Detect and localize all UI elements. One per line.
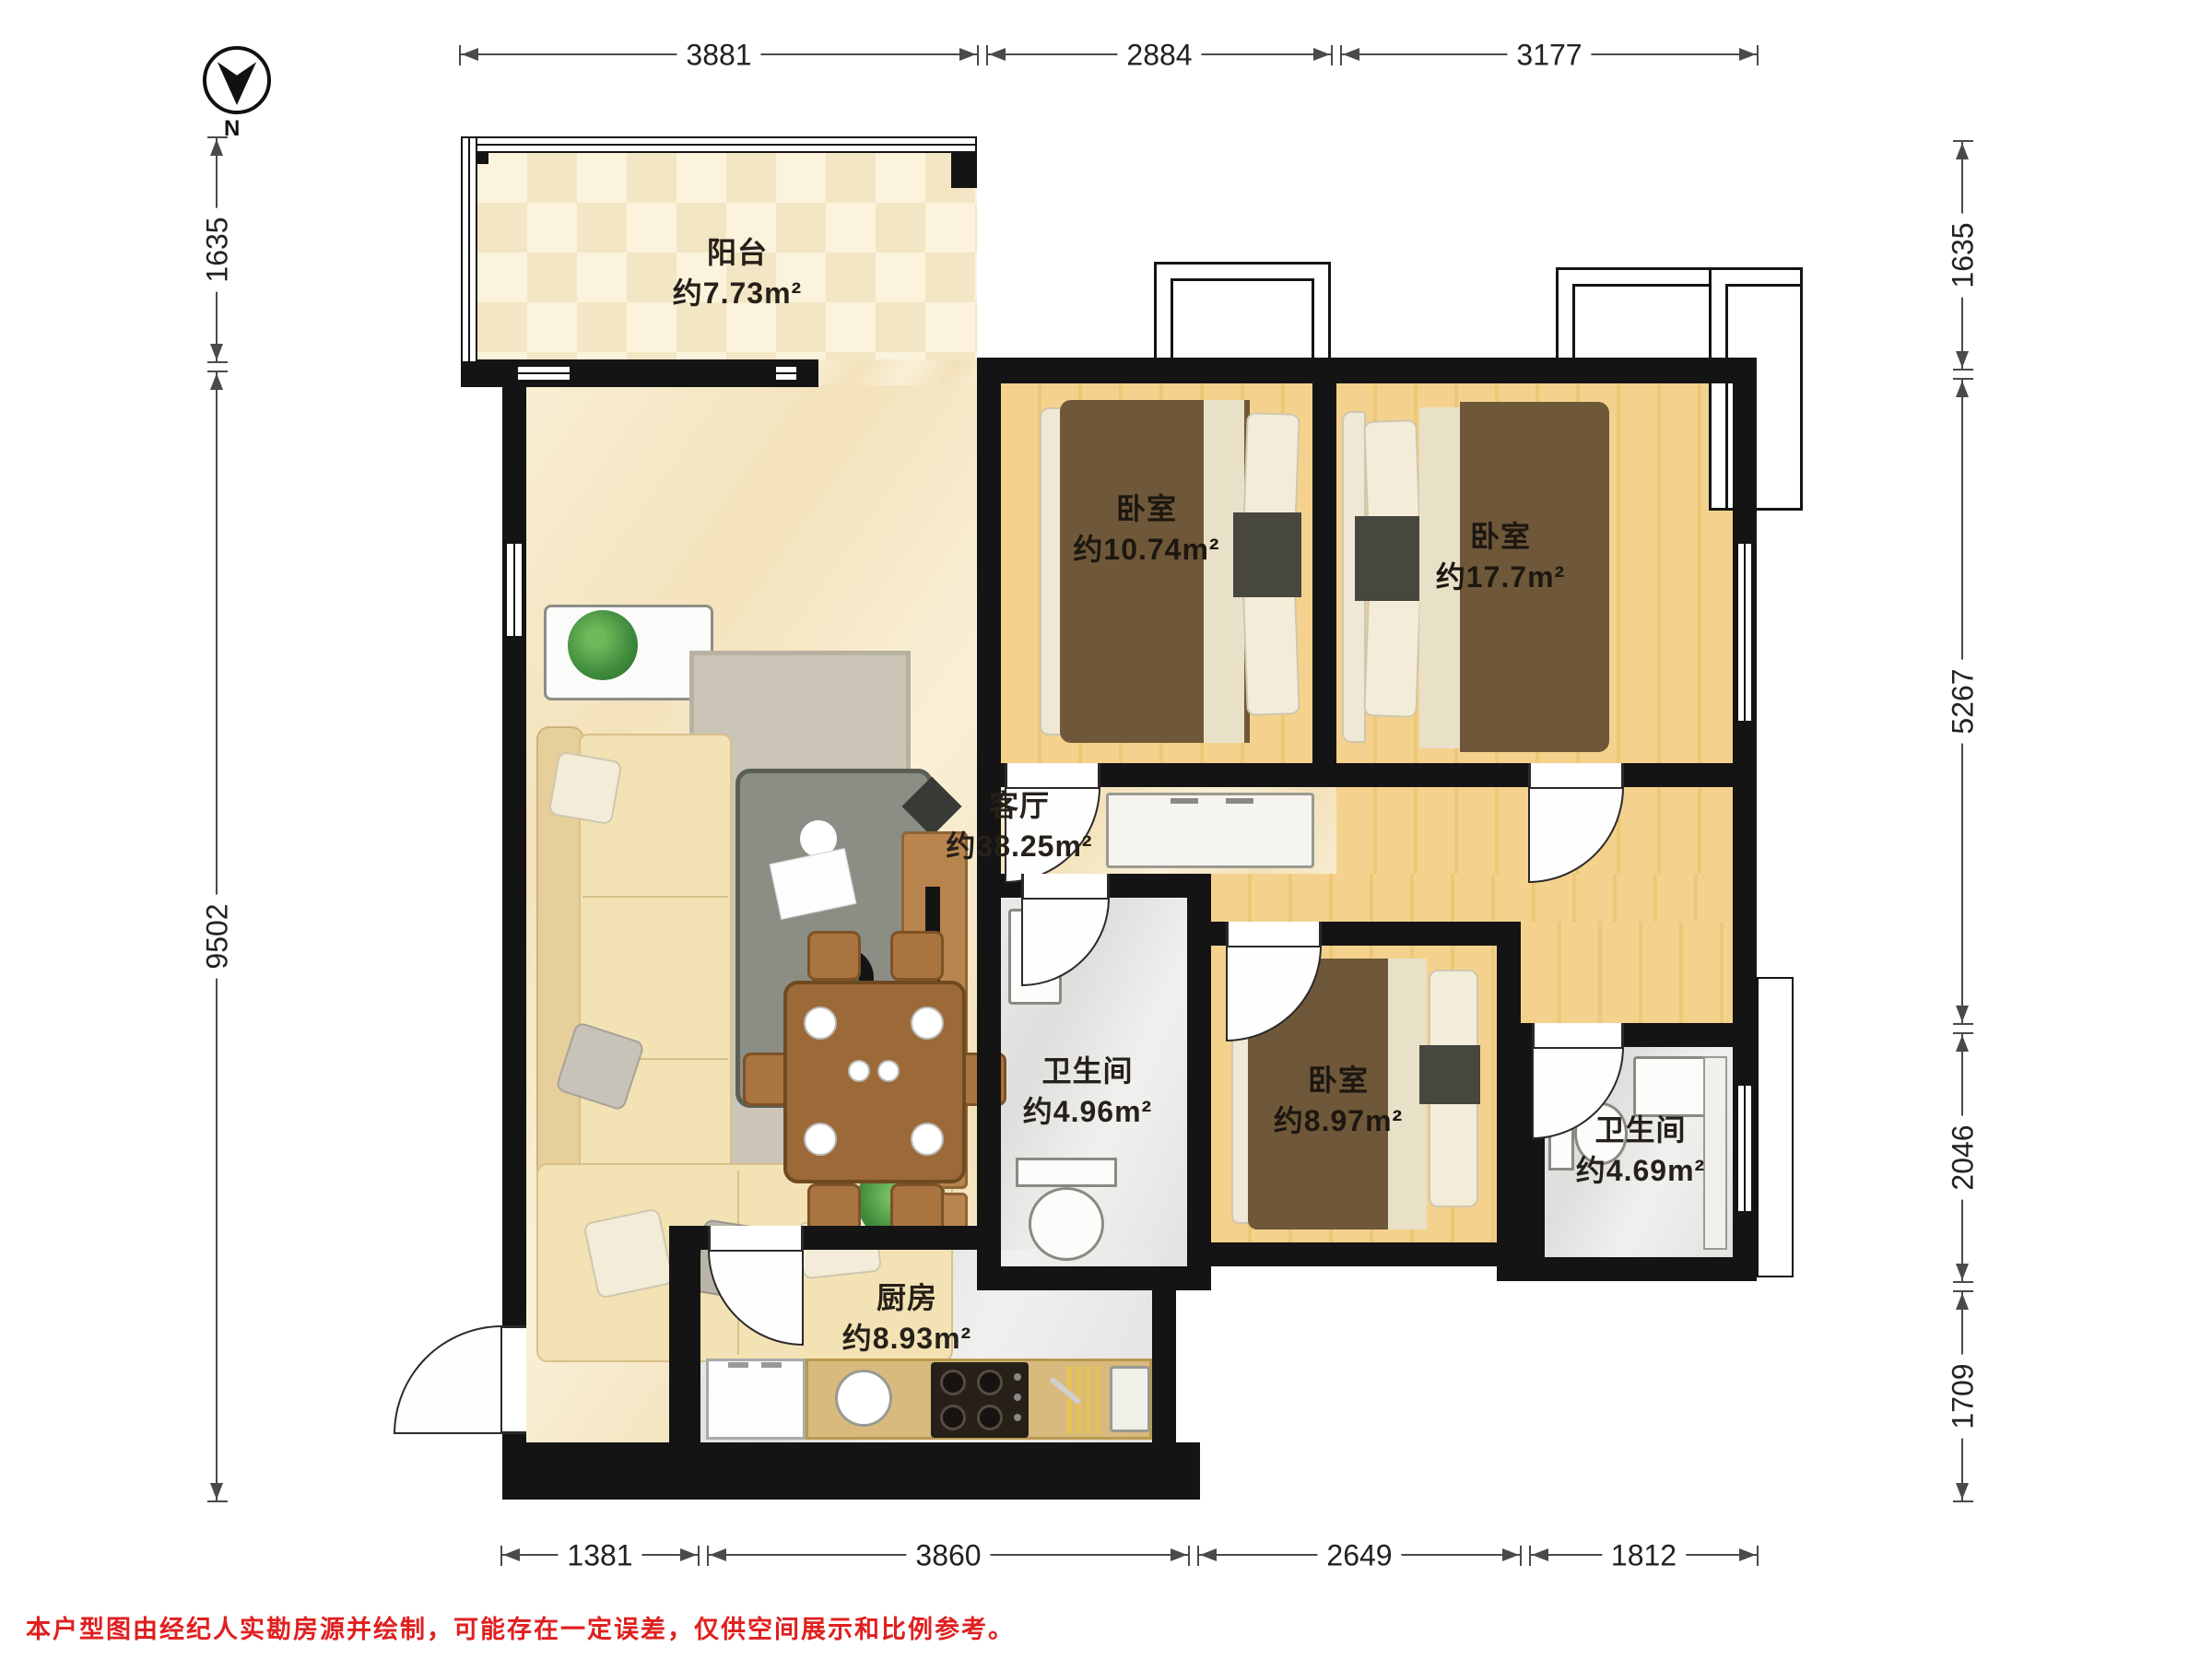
shower-ledge <box>1703 1056 1727 1250</box>
room-name: 卧室 <box>1436 516 1565 557</box>
window-icon <box>516 365 571 382</box>
dim-top-2: 2884 <box>988 53 1331 55</box>
cutting-board <box>1110 1366 1150 1432</box>
dim-bottom-4: 1812 <box>1531 1554 1757 1556</box>
dining-chair <box>807 931 861 981</box>
room-area: 约17.7m² <box>1436 557 1565 597</box>
wall <box>1001 763 1757 787</box>
room-area: 约8.93m² <box>842 1318 971 1359</box>
wall <box>1152 1266 1176 1444</box>
window-icon <box>774 365 798 382</box>
burner-icon <box>940 1370 966 1395</box>
dim-top-3: 3177 <box>1342 53 1757 55</box>
hall-floor-3 <box>1521 922 1733 1023</box>
balcony-glass-wall <box>461 136 477 363</box>
plate <box>911 1123 944 1156</box>
room-label-bathroom2: 卫生间 约4.69m² <box>1576 1110 1705 1191</box>
dim-bottom-2: 3860 <box>709 1554 1188 1556</box>
throw-pillow <box>547 750 622 825</box>
bed-runner <box>1419 1045 1480 1104</box>
wall <box>977 358 1757 383</box>
fridge-handle <box>728 1362 748 1368</box>
plate <box>804 1123 837 1156</box>
dim-top-1: 3881 <box>461 53 977 55</box>
room-name: 客厅 <box>946 785 1092 826</box>
dim-right-1: 1635 <box>1961 142 1963 369</box>
bedroom2-door-opening <box>1528 763 1624 787</box>
wall <box>1187 898 1211 1290</box>
room-name: 卫生间 <box>1023 1051 1152 1091</box>
burner-icon <box>977 1405 1003 1430</box>
compass-north-label: N <box>224 116 240 142</box>
potted-plant-icon <box>568 610 638 680</box>
dining-chair <box>890 931 944 981</box>
wall <box>502 1442 1200 1500</box>
dim-bottom-3: 2649 <box>1199 1554 1520 1556</box>
console-handle <box>1226 798 1253 804</box>
hall-floor-2 <box>1211 874 1733 922</box>
room-area: 约4.96m² <box>1023 1091 1152 1132</box>
bed-pillow <box>1429 1093 1478 1207</box>
wall <box>804 1226 977 1250</box>
bed-runner <box>1355 516 1425 601</box>
bedroom3-door-opening <box>1226 922 1322 946</box>
bedroom1-door-opening <box>1005 763 1100 787</box>
kitchen-sink-icon <box>835 1370 892 1427</box>
room-name: 阳台 <box>673 232 802 273</box>
compass <box>203 46 271 114</box>
bay-window-icon <box>1171 278 1314 361</box>
room-name: 卧室 <box>1274 1060 1403 1100</box>
dim-left-2: 9502 <box>216 372 218 1500</box>
kitchen-door-opening <box>708 1226 804 1250</box>
toilet-bowl-icon <box>1029 1187 1104 1261</box>
bowl <box>877 1060 900 1082</box>
room-label-balcony: 阳台 约7.73m² <box>673 232 802 313</box>
entry-door-opening <box>502 1325 526 1434</box>
fridge-handle <box>761 1362 782 1368</box>
wall <box>1497 922 1521 1266</box>
sofa-cushion-line <box>582 896 728 898</box>
wall <box>461 359 818 387</box>
wall <box>502 359 526 1325</box>
plate <box>804 1006 837 1040</box>
fridge <box>706 1359 806 1440</box>
room-name: 卧室 <box>1073 488 1219 529</box>
entry-door-arc <box>394 1325 502 1434</box>
room-label-bathroom1: 卫生间 约4.96m² <box>1023 1051 1152 1132</box>
room-label-bedroom3: 卧室 约8.97m² <box>1274 1060 1403 1141</box>
wall <box>1312 383 1336 787</box>
plate <box>911 1006 944 1040</box>
window-icon <box>505 542 524 638</box>
balcony-glass-wall <box>461 136 977 153</box>
chopsticks-icon <box>1086 1366 1090 1434</box>
room-name: 卫生间 <box>1576 1110 1705 1150</box>
dim-bottom-1: 1381 <box>502 1554 698 1556</box>
wall <box>1497 1257 1757 1281</box>
room-area: 约7.73m² <box>673 273 802 313</box>
console-cabinet <box>1106 793 1314 868</box>
room-label-living: 客厅 约38.25m² <box>946 785 1092 866</box>
dim-right-4: 1709 <box>1961 1292 1963 1500</box>
toilet-tank <box>1016 1158 1117 1187</box>
floor-plan: 阳台 约7.73m² 卧室 约10.74m² 卧室 约17.7m² 客厅 约38… <box>0 0 2212 1659</box>
dim-left-1: 1635 <box>216 138 218 361</box>
room-area: 约10.74m² <box>1073 529 1219 570</box>
bed-runner <box>1233 512 1301 597</box>
room-area: 约8.97m² <box>1274 1100 1403 1141</box>
room-area: 约4.69m² <box>1576 1150 1705 1191</box>
bathroom2-door-opening <box>1532 1023 1624 1047</box>
wall <box>1187 1242 1521 1266</box>
chopsticks-icon <box>1067 1366 1072 1434</box>
burner-icon <box>977 1370 1003 1395</box>
room-name: 厨房 <box>842 1277 971 1318</box>
chopsticks-icon <box>1095 1366 1100 1434</box>
dim-right-3: 2046 <box>1961 1034 1963 1281</box>
window-icon <box>1736 1084 1753 1213</box>
exterior-ledge <box>1757 977 1794 1277</box>
window-icon <box>1736 542 1753 723</box>
throw-pillow <box>582 1207 675 1300</box>
burner-icon <box>940 1405 966 1430</box>
stove-knob <box>1014 1414 1021 1421</box>
balcony-passage-floor <box>817 359 977 385</box>
stove-knob <box>1014 1373 1021 1381</box>
bathroom1-door-opening <box>1021 874 1110 898</box>
room-label-bedroom2: 卧室 约17.7m² <box>1436 516 1565 597</box>
bathroom-sink <box>1633 1056 1714 1117</box>
room-label-bedroom1: 卧室 约10.74m² <box>1073 488 1219 570</box>
north-arrow-icon <box>217 57 257 105</box>
wall <box>669 1226 700 1444</box>
dim-right-2: 5267 <box>1961 380 1963 1023</box>
bowl <box>848 1060 870 1082</box>
stove-knob <box>1014 1394 1021 1401</box>
console-handle <box>1171 798 1198 804</box>
disclaimer-text: 本户型图由经纪人实勘房源并绘制，可能存在一定误差，仅供空间展示和比例参考。 <box>26 1609 1015 1645</box>
room-label-kitchen: 厨房 约8.93m² <box>842 1277 971 1359</box>
room-area: 约38.25m² <box>946 826 1092 866</box>
